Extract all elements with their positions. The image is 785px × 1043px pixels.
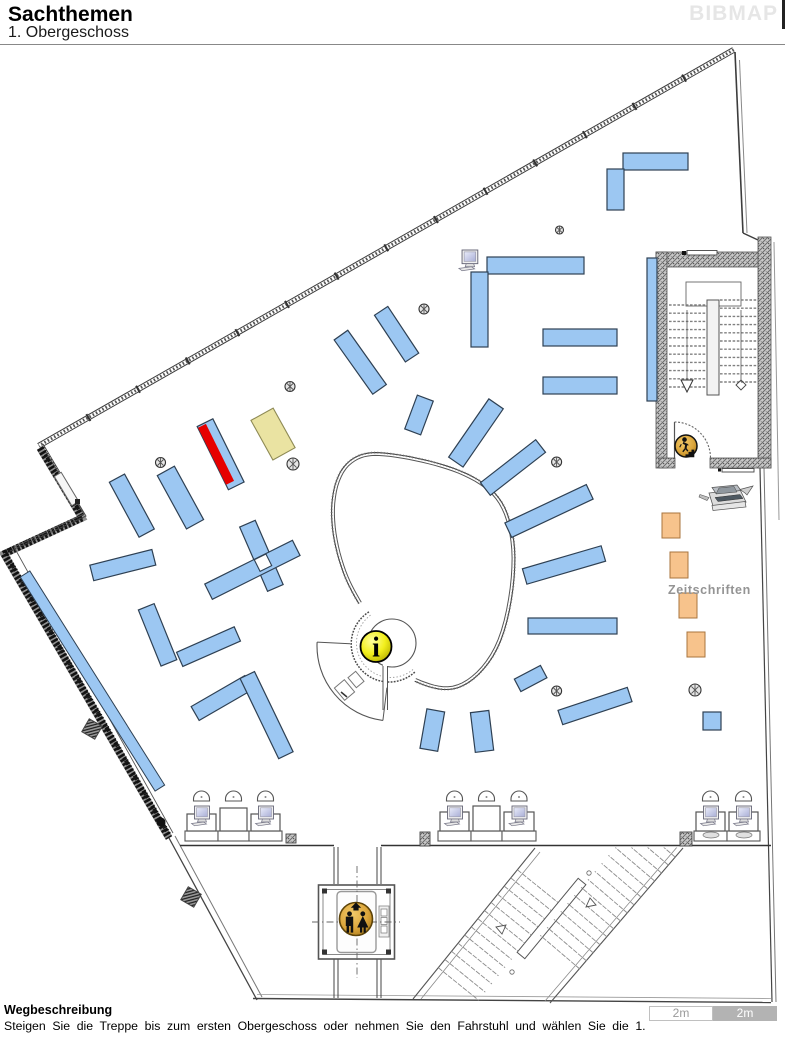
svg-text:Zeitschriften: Zeitschriften	[668, 583, 751, 597]
svg-text:i: i	[372, 633, 380, 664]
